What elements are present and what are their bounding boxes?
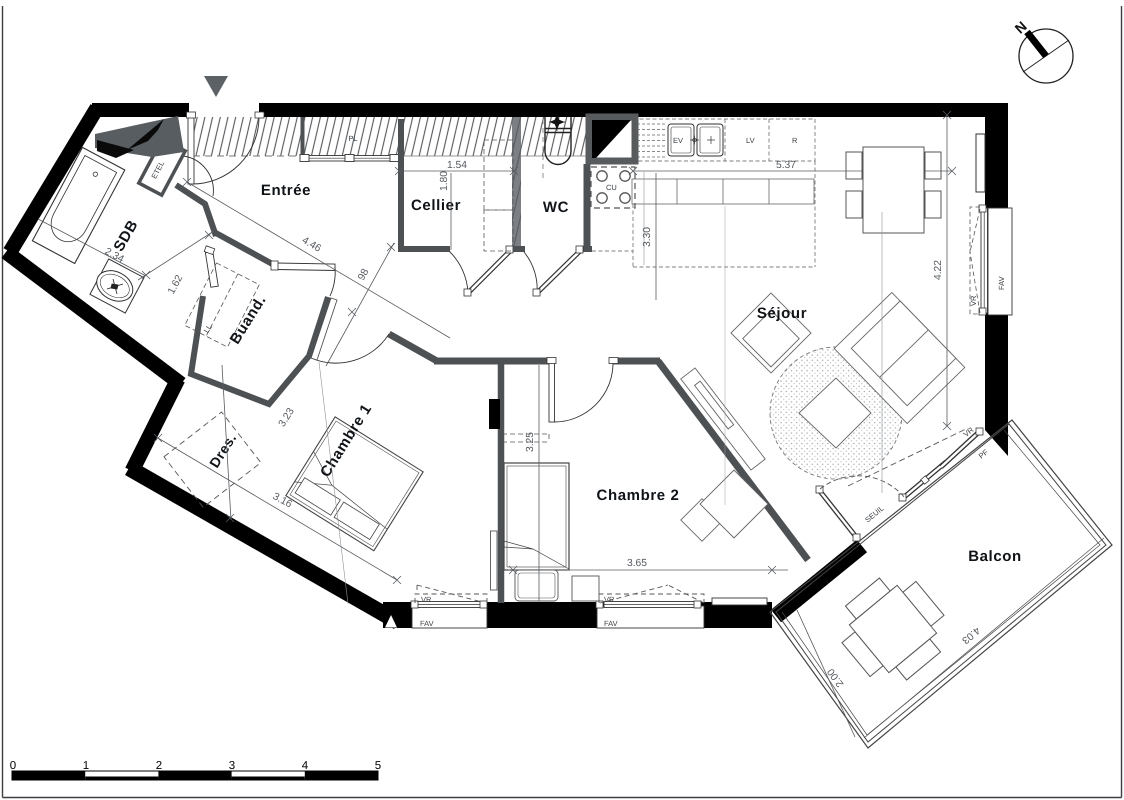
- svg-text:5.37: 5.37: [776, 160, 796, 171]
- svg-text:Cellier: Cellier: [411, 197, 461, 214]
- svg-text:3.25: 3.25: [525, 432, 536, 452]
- svg-text:VR: VR: [604, 595, 615, 604]
- svg-text:CU: CU: [606, 183, 617, 192]
- svg-text:0: 0: [10, 760, 16, 772]
- svg-text:3: 3: [229, 760, 235, 772]
- svg-text:VR: VR: [969, 295, 978, 306]
- svg-text:WC: WC: [543, 199, 569, 216]
- svg-text:EV: EV: [673, 136, 683, 145]
- svg-text:Entrée: Entrée: [261, 182, 311, 199]
- svg-text:1: 1: [83, 760, 89, 772]
- svg-text:LV: LV: [746, 136, 755, 145]
- svg-text:Séjour: Séjour: [757, 305, 807, 322]
- svg-text:PL: PL: [348, 134, 357, 143]
- svg-text:FAV: FAV: [997, 276, 1006, 290]
- svg-text:1.80: 1.80: [439, 171, 450, 191]
- svg-text:VR: VR: [421, 595, 432, 604]
- svg-text:Chambre 2: Chambre 2: [597, 487, 680, 504]
- svg-text:FAV: FAV: [604, 619, 618, 628]
- svg-text:4: 4: [302, 760, 309, 772]
- svg-text:3.65: 3.65: [627, 558, 647, 569]
- svg-text:1.54: 1.54: [447, 160, 467, 171]
- svg-text:Balcon: Balcon: [968, 548, 1022, 565]
- svg-text:3.30: 3.30: [642, 227, 653, 247]
- svg-text:2: 2: [156, 760, 162, 772]
- svg-text:R: R: [792, 136, 798, 145]
- svg-text:5: 5: [375, 760, 381, 772]
- svg-text:4.22: 4.22: [933, 260, 944, 280]
- svg-text:FAV: FAV: [420, 619, 434, 628]
